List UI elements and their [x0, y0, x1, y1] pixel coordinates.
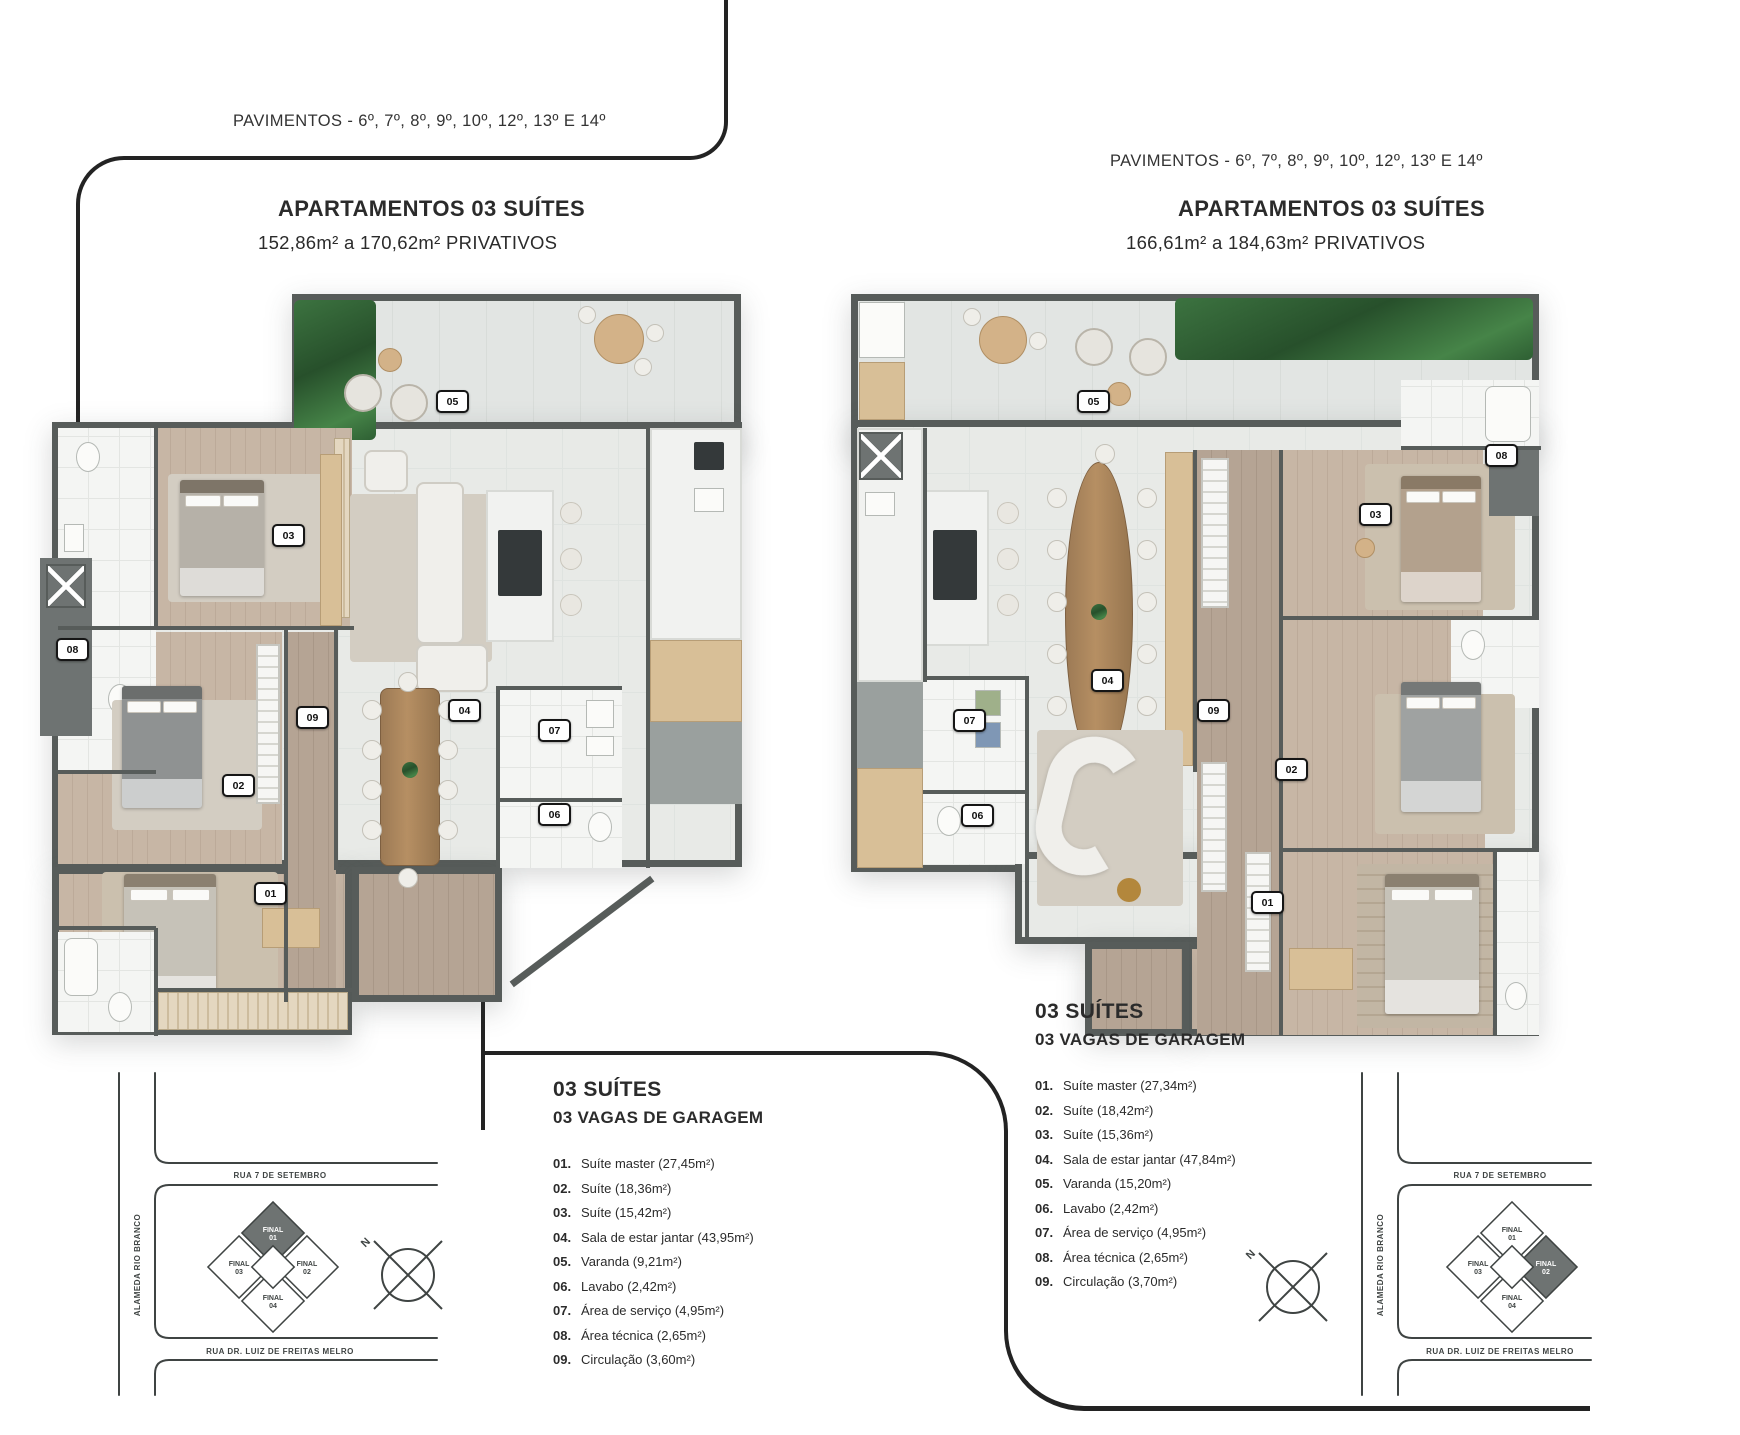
balcony-table [594, 314, 644, 364]
balcony-table [979, 316, 1027, 364]
legend-subtitle: 03 VAGAS DE GARAGEM [553, 1108, 763, 1128]
wardrobe [1201, 458, 1229, 608]
toilet-icon [937, 806, 961, 836]
wall [58, 864, 286, 868]
wall [58, 770, 156, 774]
room-badge: 01 [1251, 891, 1284, 914]
legend-item: 02.Suíte (18,42m²) [1035, 1099, 1245, 1124]
chair-icon [398, 672, 418, 692]
room-badge: 03 [1359, 503, 1392, 526]
legend-item: 01.Suíte master (27,34m²) [1035, 1074, 1245, 1099]
left-subtitle: 152,86m² a 170,62m² PRIVATIVOS [258, 232, 557, 254]
bed-icon [1385, 874, 1479, 1014]
building-footprint: FINAL01 FINAL02 FINAL03 FINAL04 [1447, 1202, 1577, 1332]
wall [58, 626, 354, 630]
chair-icon [362, 700, 382, 720]
street-label-bottom: RUA DR. LUIZ DE FREITAS MELRO [1426, 1347, 1574, 1356]
cabinet [859, 362, 905, 420]
floorplan-right: 05 03 08 04 07 09 02 06 01 [845, 292, 1545, 1037]
wall [496, 686, 622, 690]
wall [1279, 848, 1539, 852]
wall [1401, 446, 1541, 450]
chair-icon [1137, 540, 1157, 560]
street-label-bottom: RUA DR. LUIZ DE FREITAS MELRO [206, 1347, 354, 1356]
chair-icon [362, 740, 382, 760]
legend-subtitle: 03 VAGAS DE GARAGEM [1035, 1030, 1245, 1050]
legend-item: 09.Circulação (3,60m²) [553, 1348, 763, 1373]
sink-icon [865, 492, 895, 516]
compass-icon: N [359, 1236, 442, 1309]
plant-wall [294, 300, 376, 440]
bathtub-icon [1485, 386, 1531, 442]
chair-icon [1047, 644, 1067, 664]
legend-item: 08.Área técnica (2,65m²) [1035, 1246, 1245, 1271]
toilet-icon [76, 442, 100, 472]
cabinet [650, 722, 742, 804]
chair-icon [1137, 592, 1157, 612]
legend-item: 04.Sala de estar jantar (43,95m²) [553, 1226, 763, 1251]
armchair-icon [1129, 338, 1167, 376]
bed-icon [122, 686, 202, 808]
desk [1289, 948, 1353, 990]
room-badge: 09 [296, 706, 329, 729]
plant-icon [1091, 604, 1107, 620]
room-badge: 05 [1077, 390, 1110, 413]
wall [1193, 450, 1197, 772]
room-badge: 04 [448, 699, 481, 722]
armchair-icon [390, 384, 428, 422]
desk [262, 908, 320, 948]
room-badge: 02 [222, 774, 255, 797]
svg-text:N: N [1244, 1248, 1258, 1262]
sofa-icon [416, 482, 464, 644]
stool-icon [560, 502, 582, 524]
wall [58, 926, 156, 930]
bed-icon [1401, 682, 1481, 812]
legend-item: 02.Suíte (18,36m²) [553, 1177, 763, 1202]
buffet-cabinet [1165, 452, 1193, 766]
room-badge: 07 [538, 719, 571, 742]
wall [1279, 450, 1283, 1035]
sitemap-right: RUA 7 DE SETEMBRO RUA DR. LUIZ DE FREITA… [1235, 1055, 1595, 1400]
chair-icon [578, 306, 596, 324]
legend-left: 03 SUÍTES 03 VAGAS DE GARAGEM 01.Suíte m… [553, 1078, 763, 1373]
toilet-icon [1505, 982, 1527, 1010]
street-label-left: ALAMEDA RIO BRANCO [133, 1214, 142, 1316]
legend-title: 03 SUÍTES [1035, 1000, 1245, 1024]
wall [646, 428, 650, 868]
chair-icon [646, 324, 664, 342]
sink-icon [694, 488, 724, 512]
chair-icon [362, 820, 382, 840]
chair-icon [438, 820, 458, 840]
wall [496, 688, 500, 868]
room-badge: 09 [1197, 699, 1230, 722]
legend-item: 08.Área técnica (2,65m²) [553, 1324, 763, 1349]
chair-icon [362, 780, 382, 800]
plant-wall [1175, 298, 1533, 360]
room-badge: 05 [436, 390, 469, 413]
street-label-left: ALAMEDA RIO BRANCO [1376, 1214, 1385, 1316]
chair-icon [963, 308, 981, 326]
wall [1493, 852, 1497, 1036]
shaft-icon [859, 432, 903, 480]
legend-right: 03 SUÍTES 03 VAGAS DE GARAGEM 01.Suíte m… [1035, 1000, 1245, 1295]
washer-icon [586, 700, 614, 728]
stool-icon [997, 548, 1019, 570]
wall [923, 790, 1029, 794]
wall [923, 676, 1029, 680]
legend-item: 05.Varanda (9,21m²) [553, 1250, 763, 1275]
wardrobe [256, 644, 280, 804]
oven-icon [694, 442, 724, 470]
chair-icon [1137, 488, 1157, 508]
floorplan-left: 05 03 08 09 04 07 02 06 01 [46, 292, 746, 1037]
sitemap-left: RUA 7 DE SETEMBRO RUA DR. LUIZ DE FREITA… [95, 1055, 445, 1400]
right-subtitle: 166,61m² a 184,63m² PRIVATIVOS [1126, 232, 1425, 254]
chair-icon [438, 740, 458, 760]
toilet-icon [1461, 630, 1485, 660]
sink-icon [586, 736, 614, 756]
tv-cabinet [320, 454, 342, 626]
armchair-icon [344, 374, 382, 412]
legend-item: 03.Suíte (15,42m²) [553, 1201, 763, 1226]
wall [154, 428, 158, 626]
room-badge: 03 [272, 524, 305, 547]
wall [284, 630, 288, 1002]
legend-item: 05.Varanda (15,20m²) [1035, 1172, 1245, 1197]
floorplan-sheet: { "left_unit": { "header": { "pavimentos… [0, 0, 1740, 1435]
room-badge: 01 [254, 882, 287, 905]
toilet-icon [588, 812, 612, 842]
wall [156, 988, 352, 992]
side-table [1107, 382, 1131, 406]
legend-item: 03.Suíte (15,36m²) [1035, 1123, 1245, 1148]
bathtub-icon [64, 938, 98, 996]
chair-icon [398, 868, 418, 888]
chair-icon [1137, 644, 1157, 664]
wall [1025, 676, 1029, 942]
compass-icon: N [1244, 1248, 1327, 1321]
chaise [416, 644, 488, 692]
wall [923, 428, 927, 682]
room-badge: 08 [1485, 444, 1518, 467]
legend-item: 04.Sala de estar jantar (47,84m²) [1035, 1148, 1245, 1173]
right-pavimentos: PAVIMENTOS - 6º, 7º, 8º, 9º, 10º, 12º, 1… [1110, 152, 1483, 171]
swoosh-top-stub [690, 0, 728, 160]
armchair-icon [364, 450, 408, 492]
wall [1279, 616, 1539, 620]
room-badge: 04 [1091, 669, 1124, 692]
side-table [1355, 538, 1375, 558]
legend-item: 07.Área de serviço (4,95m²) [1035, 1221, 1245, 1246]
building-footprint: FINAL01 FINAL02 FINAL03 FINAL04 [208, 1202, 338, 1332]
room-badge: 06 [538, 803, 571, 826]
legend-item: 06.Lavabo (2,42m²) [1035, 1197, 1245, 1222]
kitchen-counter [857, 768, 923, 868]
armchair-icon [1075, 328, 1113, 366]
closet [158, 992, 348, 1030]
chair-icon [1095, 444, 1115, 464]
cooktop-icon [933, 530, 977, 600]
toilet-icon [108, 992, 132, 1022]
right-title: APARTAMENTOS 03 SUÍTES [1178, 196, 1485, 222]
hall-wing [352, 867, 502, 1002]
wall [334, 630, 338, 870]
legend-item: 07.Área de serviço (4,95m²) [553, 1299, 763, 1324]
legend-item: 06.Lavabo (2,42m²) [553, 1275, 763, 1300]
chair-icon [1047, 488, 1067, 508]
room-badge: 08 [56, 638, 89, 661]
left-pavimentos: PAVIMENTOS - 6º, 7º, 8º, 9º, 10º, 12º, 1… [233, 112, 606, 131]
stool-icon [560, 548, 582, 570]
street-label-top: RUA 7 DE SETEMBRO [1453, 1171, 1546, 1180]
room-badge: 07 [953, 709, 986, 732]
room-badge: 02 [1275, 758, 1308, 781]
chair-icon [634, 358, 652, 376]
cooktop-icon [498, 530, 542, 596]
legend-item: 09.Circulação (3,70m²) [1035, 1270, 1245, 1295]
chair-icon [1047, 696, 1067, 716]
wall [496, 798, 622, 802]
street-label-top: RUA 7 DE SETEMBRO [233, 1171, 326, 1180]
shaft-icon [46, 564, 86, 608]
stool-icon [997, 502, 1019, 524]
sink-icon [859, 302, 905, 358]
pouf-icon [1117, 878, 1141, 902]
sink-icon [64, 524, 84, 552]
chair-icon [1029, 332, 1047, 350]
chair-icon [1137, 696, 1157, 716]
diagonal-wall [510, 876, 655, 988]
wardrobe [1201, 762, 1227, 892]
cabinet [857, 682, 923, 768]
stool-icon [997, 594, 1019, 616]
wall [154, 928, 158, 1036]
chair-icon [1047, 592, 1067, 612]
chair-icon [438, 780, 458, 800]
stool-icon [560, 594, 582, 616]
bed-icon [180, 480, 264, 596]
left-title: APARTAMENTOS 03 SUÍTES [278, 196, 585, 222]
plant-icon [402, 762, 418, 778]
kitchen-counter [650, 640, 742, 722]
room-badge: 06 [961, 804, 994, 827]
service-area [923, 680, 1025, 792]
legend-title: 03 SUÍTES [553, 1078, 763, 1102]
chair-icon [1047, 540, 1067, 560]
legend-item: 01.Suíte master (27,45m²) [553, 1152, 763, 1177]
svg-text:N: N [359, 1236, 373, 1250]
side-table [378, 348, 402, 372]
bed-icon [1401, 476, 1481, 602]
